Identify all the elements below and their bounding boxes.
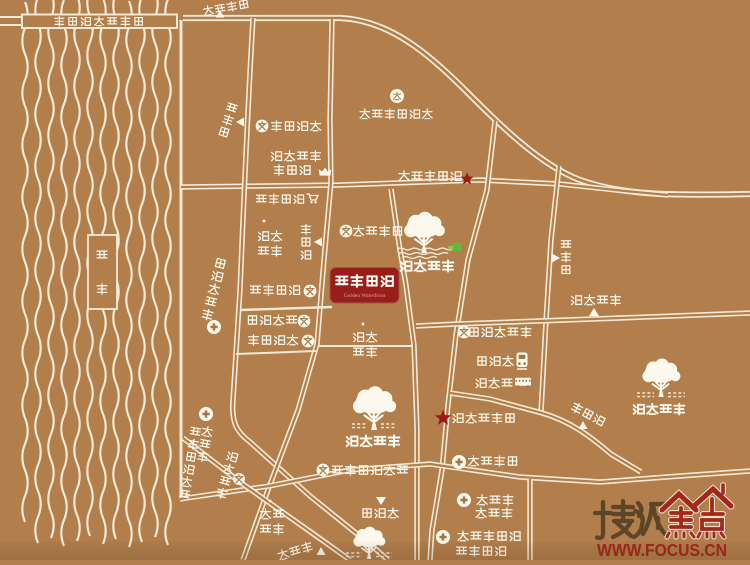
svg-text:Golden Waterfront: Golden Waterfront <box>344 292 386 299</box>
